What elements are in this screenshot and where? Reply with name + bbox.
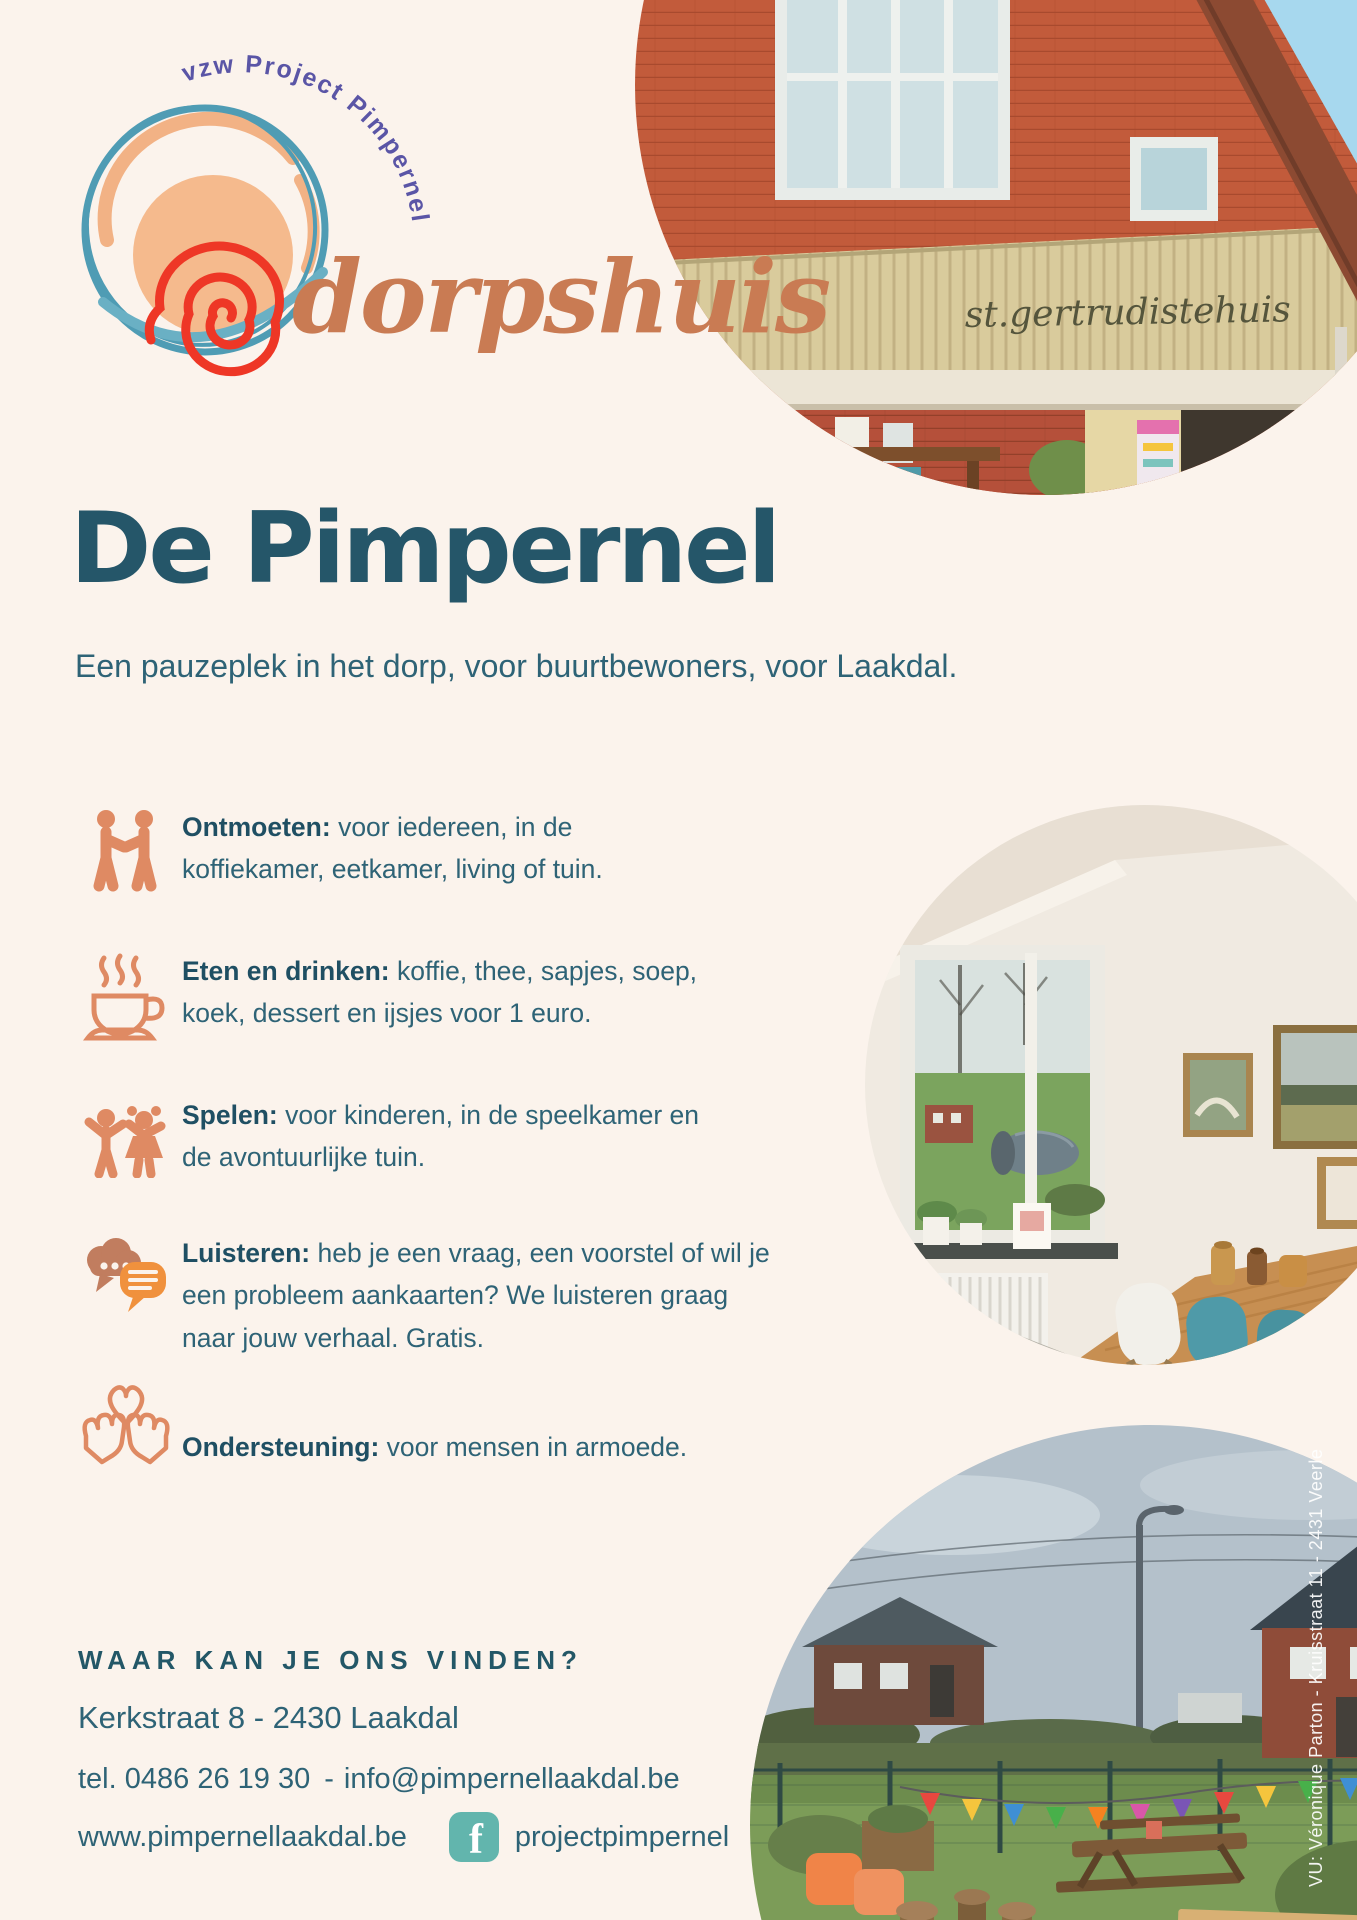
window xyxy=(900,945,1105,1245)
floor-tile-lines xyxy=(865,1292,985,1365)
bench xyxy=(795,447,1000,495)
coffee-cup-icon xyxy=(70,950,182,1046)
speech-bubbles-icon xyxy=(70,1232,182,1359)
flyer-page: st.gertrudistehuis xyxy=(0,0,1357,1920)
downpipe xyxy=(1335,327,1347,377)
feature-text: Luisteren: heb je een vraag, een voorste… xyxy=(182,1232,782,1359)
planter-box xyxy=(862,1805,934,1871)
facebook-handle: projectpimpernel xyxy=(515,1821,729,1854)
interior-photo-illustration xyxy=(865,805,1357,1365)
feature-ontmoeten: Ontmoeten: voor iedereen, in de koffieka… xyxy=(70,806,707,894)
trailer xyxy=(1178,1693,1242,1723)
photo-interior-diningroom xyxy=(865,805,1357,1365)
feature-luisteren: Luisteren: heb je een vraag, een voorste… xyxy=(70,1232,782,1359)
feature-text: Ondersteuning: voor mensen in armoede. xyxy=(182,1426,687,1484)
facebook-icon: f xyxy=(449,1812,499,1862)
feature-text: Ontmoeten: voor iedereen, in de koffieka… xyxy=(182,806,707,894)
building-sign-text: st.gertrudistehuis xyxy=(964,289,1291,336)
contact-phone-email: tel. 0486 26 19 30-info@pimpernellaakdal… xyxy=(78,1763,680,1796)
feature-text: Spelen: voor kinderen, in de speelkamer … xyxy=(182,1094,722,1179)
publisher-credit: VU: Véronique Parton - Kruisstraat 11 - … xyxy=(1306,1287,1327,1887)
playing-children-icon xyxy=(70,1094,182,1179)
small-window xyxy=(1130,137,1218,221)
website-url: www.pimpernellaakdal.be xyxy=(78,1821,407,1854)
feature-eten-en-drinken: Eten en drinken: koffie, thee, sapjes, s… xyxy=(70,950,752,1046)
meeting-people-icon xyxy=(70,806,182,894)
hands-heart-icon xyxy=(70,1380,182,1484)
playground-photo-illustration xyxy=(750,1425,1357,1920)
passage xyxy=(1181,410,1357,495)
svg-text:f: f xyxy=(469,1817,484,1862)
entrance-pillar xyxy=(1085,410,1181,495)
contact-heading: WAAR KAN JE ONS VINDEN? xyxy=(78,1645,583,1676)
contact-address: Kerkstraat 8 - 2430 Laakdal xyxy=(78,1700,459,1736)
email-address: info@pimpernellaakdal.be xyxy=(344,1763,680,1795)
page-title: De Pimpernel xyxy=(70,492,778,606)
separator: - xyxy=(324,1763,334,1795)
radiator xyxy=(910,1273,1048,1355)
canopy xyxy=(635,370,1357,410)
feature-spelen: Spelen: voor kinderen, in de speelkamer … xyxy=(70,1094,722,1179)
page-subtitle: Een pauzeplek in het dorp, voor buurtbew… xyxy=(75,648,957,685)
contact-web-row: www.pimpernellaakdal.be f projectpimpern… xyxy=(78,1812,729,1862)
cloud xyxy=(800,1475,1100,1555)
dorpshuis-script-text: dorpshuis xyxy=(292,238,829,356)
phone-number: tel. 0486 26 19 30 xyxy=(78,1763,310,1795)
feature-text: Eten en drinken: koffie, thee, sapjes, s… xyxy=(182,950,752,1046)
upper-window xyxy=(775,0,1010,200)
photo-playground-garden xyxy=(750,1425,1357,1920)
feature-ondersteuning: Ondersteuning: voor mensen in armoede. xyxy=(70,1380,687,1484)
